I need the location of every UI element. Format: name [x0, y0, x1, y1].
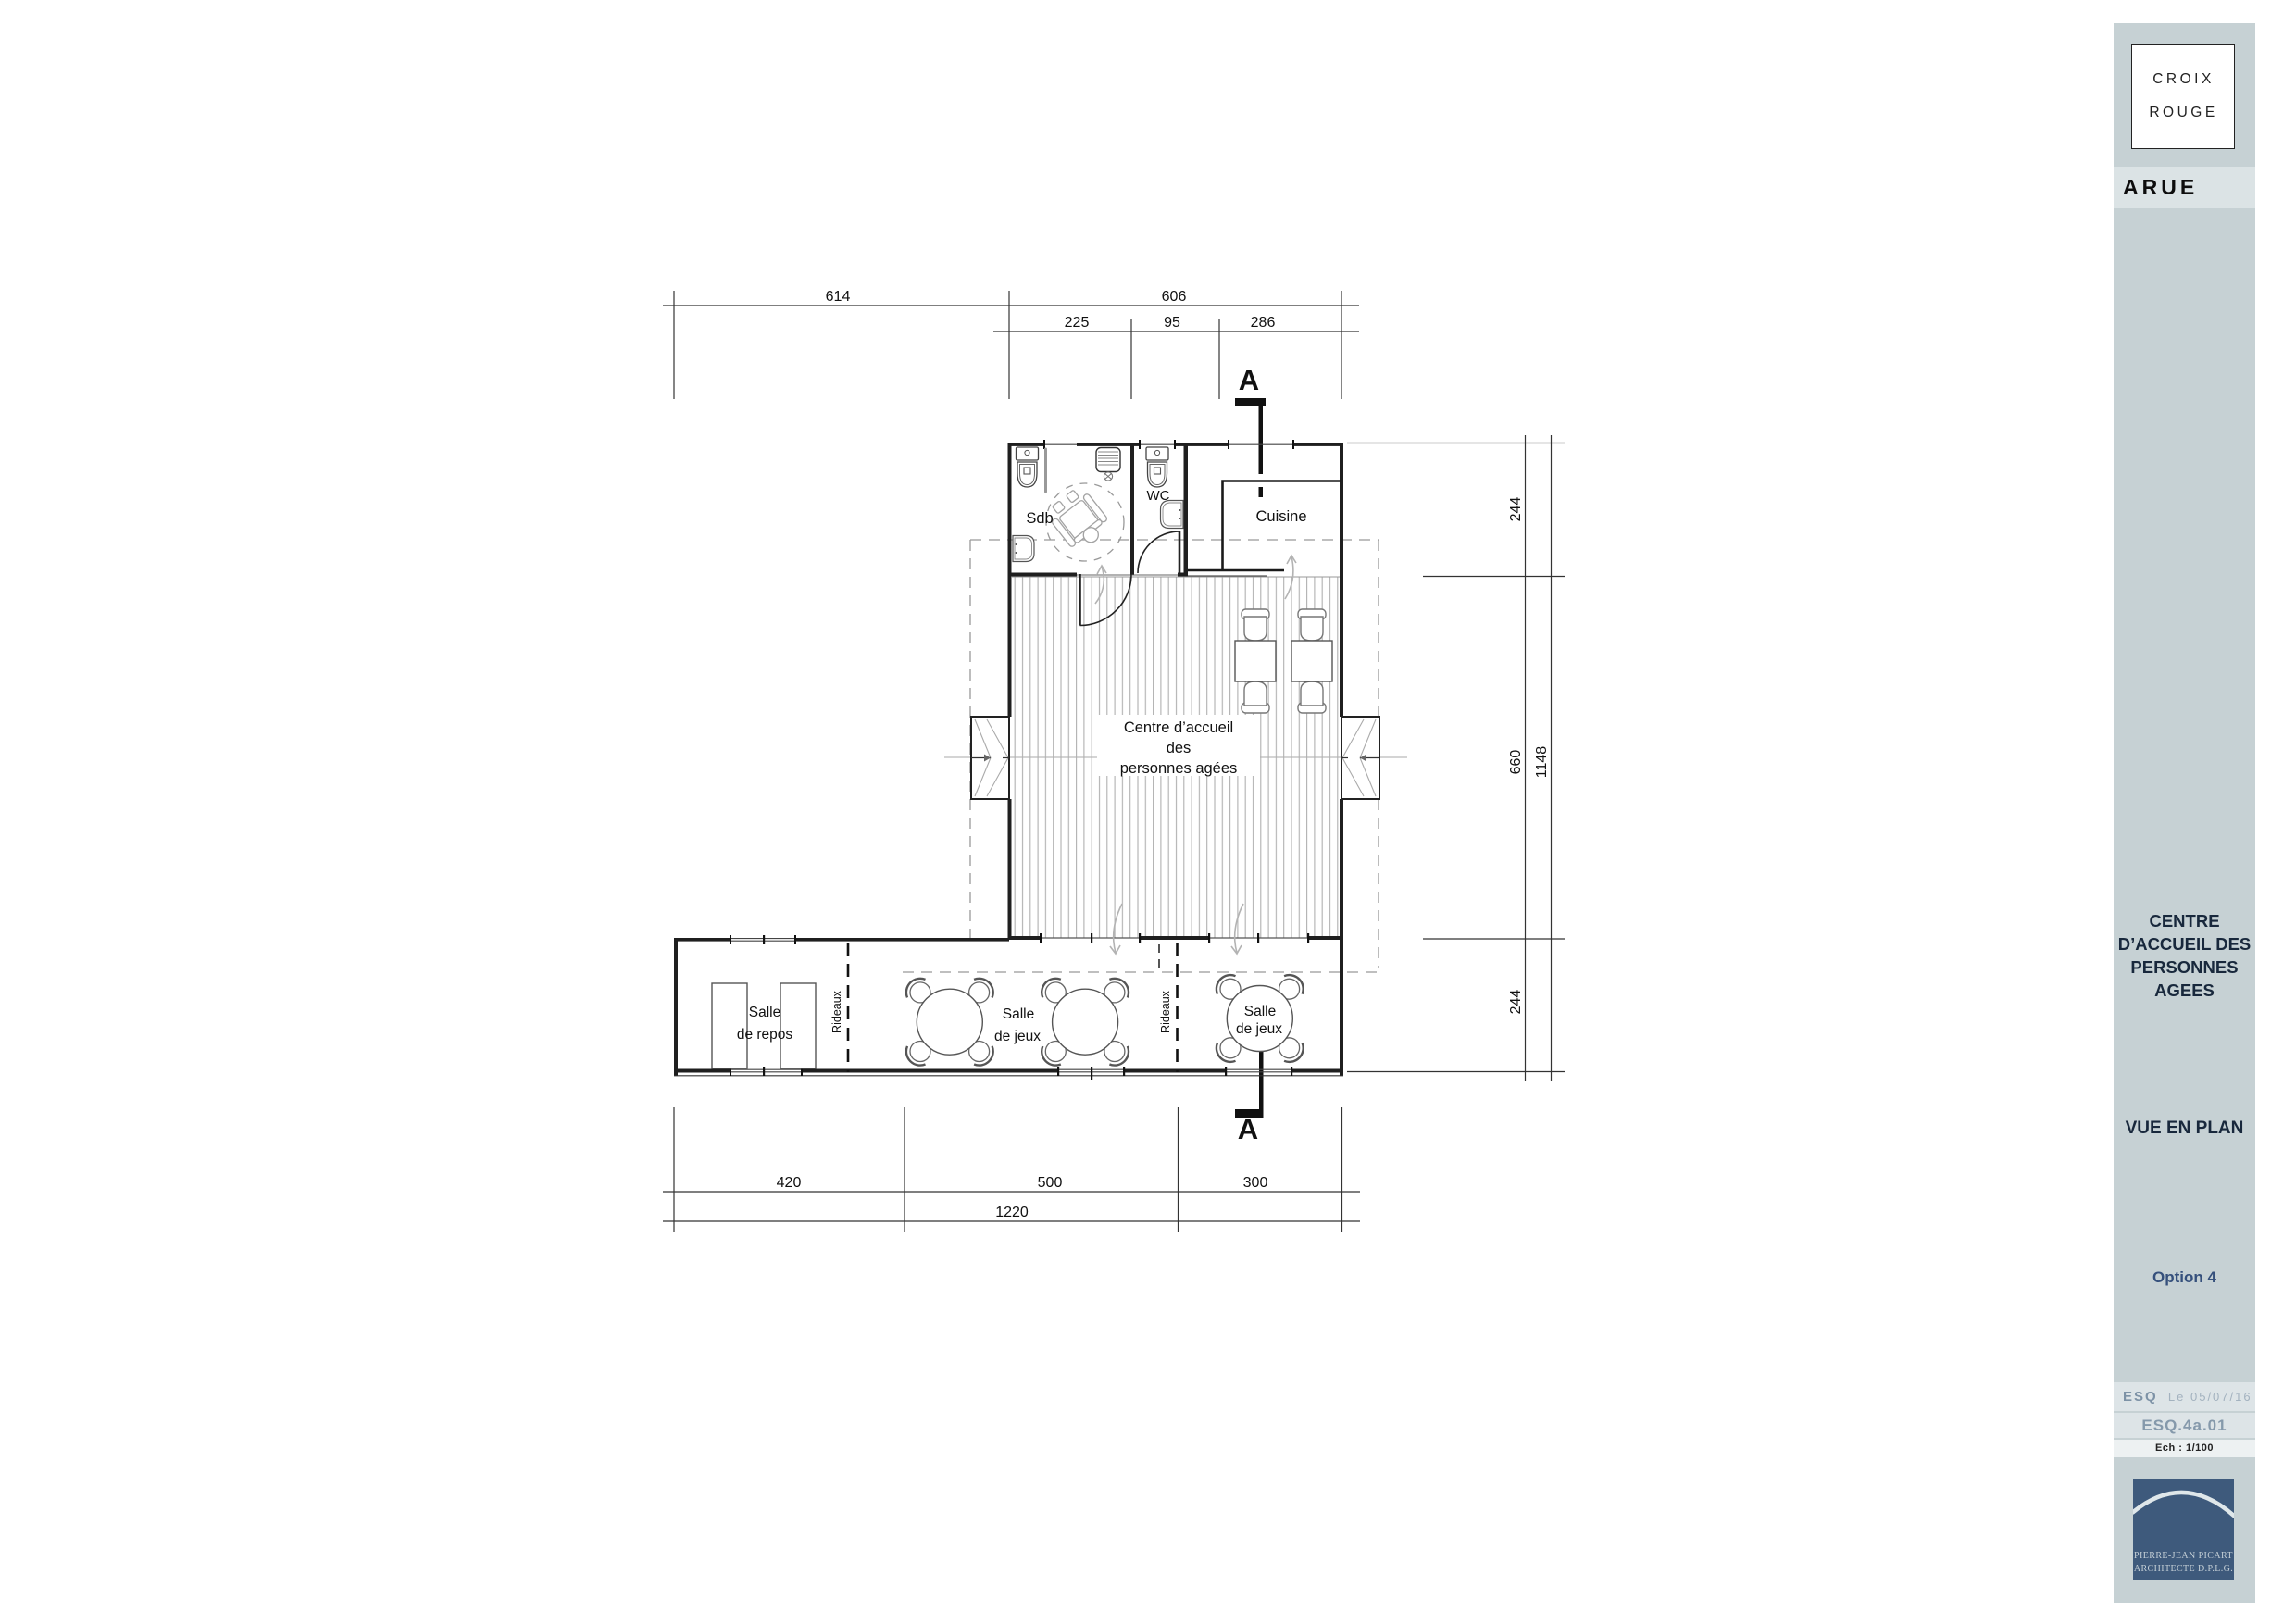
- svg-text:660: 660: [1508, 750, 1524, 775]
- svg-text:WC: WC: [1147, 488, 1170, 504]
- svg-text:244: 244: [1508, 497, 1524, 522]
- svg-text:1220: 1220: [995, 1205, 1029, 1220]
- svg-text:Centre d’accueil: Centre d’accueil: [1124, 719, 1233, 736]
- svg-text:Salle: Salle: [749, 1005, 780, 1020]
- svg-text:Rideaux: Rideaux: [830, 990, 843, 1033]
- svg-text:des: des: [1167, 740, 1192, 756]
- svg-text:de jeux: de jeux: [994, 1029, 1041, 1044]
- svg-text:A: A: [1239, 364, 1259, 396]
- svg-text:286: 286: [1251, 315, 1276, 331]
- svg-text:606: 606: [1162, 289, 1187, 305]
- svg-text:420: 420: [777, 1175, 802, 1191]
- svg-text:Salle: Salle: [1003, 1006, 1034, 1022]
- svg-text:1148: 1148: [1534, 746, 1550, 779]
- svg-text:95: 95: [1164, 315, 1180, 331]
- svg-text:225: 225: [1065, 315, 1090, 331]
- svg-text:Rideaux: Rideaux: [1159, 990, 1172, 1033]
- svg-text:A: A: [1238, 1113, 1258, 1145]
- svg-text:de repos: de repos: [737, 1027, 793, 1043]
- svg-text:de jeux: de jeux: [1236, 1021, 1282, 1037]
- svg-text:Salle: Salle: [1244, 1004, 1276, 1019]
- svg-text:614: 614: [826, 289, 851, 305]
- svg-text:244: 244: [1508, 990, 1524, 1015]
- svg-text:300: 300: [1243, 1175, 1268, 1191]
- svg-text:personnes agées: personnes agées: [1120, 760, 1238, 777]
- svg-text:500: 500: [1038, 1175, 1063, 1191]
- svg-text:Cuisine: Cuisine: [1255, 508, 1306, 525]
- svg-text:Sdb: Sdb: [1026, 510, 1053, 527]
